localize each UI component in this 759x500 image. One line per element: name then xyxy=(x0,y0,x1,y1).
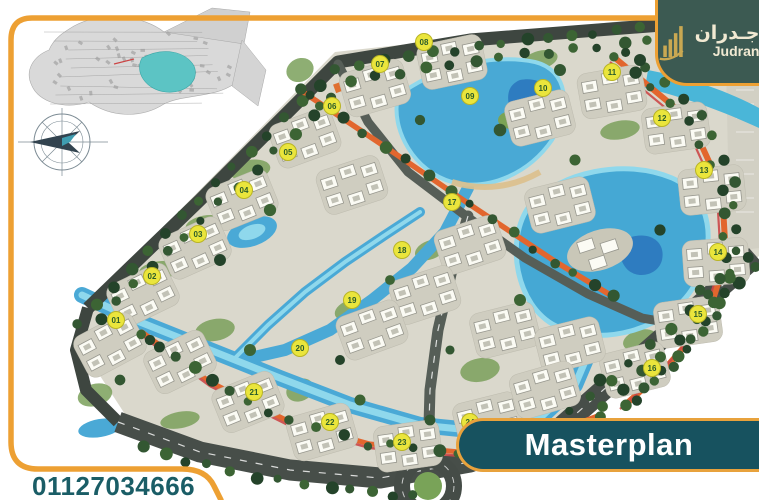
cluster-badge: 03 xyxy=(190,226,207,243)
cluster-badge: 02 xyxy=(144,268,161,285)
compass-rose-icon xyxy=(18,108,108,176)
svg-text:12: 12 xyxy=(658,114,667,123)
svg-text:19: 19 xyxy=(348,296,357,305)
masterplan-banner-label: Masterplan xyxy=(525,427,694,463)
cluster-badge: 11 xyxy=(604,64,621,81)
cluster-badge: 01 xyxy=(108,312,125,329)
judran-logo-mark-icon xyxy=(658,21,688,63)
cluster-badge: 13 xyxy=(696,162,713,179)
cluster-badge: 23 xyxy=(394,434,411,451)
cluster-badge: 05 xyxy=(280,144,297,161)
logo-arabic-text: جـدران xyxy=(695,24,759,44)
cluster-badge: 17 xyxy=(444,194,461,211)
cluster-badge: 15 xyxy=(690,306,707,323)
judran-logo: جـدران Judran xyxy=(655,0,759,86)
logo-latin-text: Judran xyxy=(713,44,759,59)
cluster-badge: 10 xyxy=(535,80,552,97)
svg-text:23: 23 xyxy=(398,438,407,447)
svg-text:22: 22 xyxy=(326,418,335,427)
svg-text:01: 01 xyxy=(112,316,121,325)
svg-text:04: 04 xyxy=(240,186,249,195)
svg-text:16: 16 xyxy=(648,364,657,373)
cluster-badge: 16 xyxy=(644,360,661,377)
svg-text:14: 14 xyxy=(714,248,723,257)
masterplan-flyer: 0102030405060708091011121314151617181920… xyxy=(0,0,759,500)
svg-text:07: 07 xyxy=(376,60,385,69)
cluster-badge: 09 xyxy=(462,88,479,105)
cluster-badge: 19 xyxy=(344,292,361,309)
svg-text:15: 15 xyxy=(694,310,703,319)
cluster-badge: 04 xyxy=(236,182,253,199)
svg-text:13: 13 xyxy=(700,166,709,175)
svg-text:17: 17 xyxy=(448,198,457,207)
cluster-badge: 08 xyxy=(416,34,433,51)
cluster-badge: 21 xyxy=(246,384,263,401)
cluster-badge: 14 xyxy=(710,244,727,261)
svg-text:08: 08 xyxy=(420,38,429,47)
svg-text:03: 03 xyxy=(194,230,203,239)
svg-text:10: 10 xyxy=(539,84,548,93)
svg-text:06: 06 xyxy=(328,102,337,111)
svg-text:21: 21 xyxy=(250,388,259,397)
cluster-badge: 12 xyxy=(654,110,671,127)
cluster-badge: 06 xyxy=(324,98,341,115)
svg-text:02: 02 xyxy=(148,272,157,281)
svg-text:09: 09 xyxy=(466,92,475,101)
svg-text:20: 20 xyxy=(296,344,305,353)
svg-text:11: 11 xyxy=(608,68,617,77)
cluster-badge: 22 xyxy=(322,414,339,431)
svg-text:18: 18 xyxy=(398,246,407,255)
location-inset-map xyxy=(29,8,266,114)
phone-number: 01127034666 xyxy=(32,471,195,500)
masterplan-banner: Masterplan xyxy=(456,418,759,472)
cluster-badge: 20 xyxy=(292,340,309,357)
svg-text:05: 05 xyxy=(284,148,293,157)
cluster-badge: 07 xyxy=(372,56,389,73)
cluster-badge: 18 xyxy=(394,242,411,259)
